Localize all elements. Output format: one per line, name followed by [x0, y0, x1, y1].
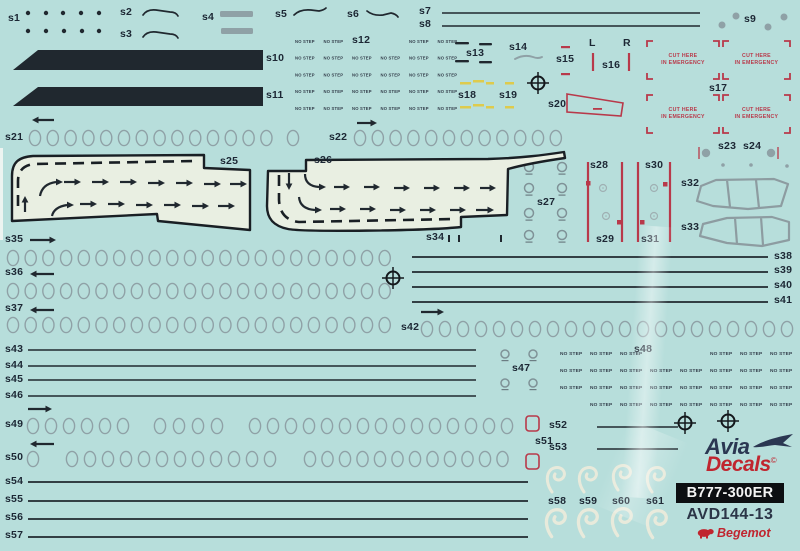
window-oval-outline [43, 317, 54, 332]
window-oval-outline [96, 250, 107, 265]
window-oval-outline [326, 317, 337, 332]
gray-dot-decal [781, 14, 788, 21]
window-oval-outline [78, 250, 89, 265]
no-step-text: NO STEP [650, 368, 673, 374]
yellow-dash-decal [505, 82, 514, 85]
window-oval-outline [308, 283, 319, 298]
no-step-text: NO STEP [740, 385, 763, 391]
window-oval-outline [781, 321, 792, 336]
window-oval-outline [102, 451, 113, 466]
window-oval-outline [238, 250, 249, 265]
window-oval-outline [372, 130, 383, 145]
window-oval-outline [393, 418, 404, 433]
window-oval-outline [291, 250, 302, 265]
no-step-text: NO STEP [620, 402, 643, 408]
window-oval-outline [25, 250, 36, 265]
no-step-text: NO STEP [770, 351, 793, 357]
window-oval-outline [379, 317, 390, 332]
window-oval-outline [322, 451, 333, 466]
window-oval-outline [96, 317, 107, 332]
filler-ring-decal [558, 231, 567, 240]
window-oval-outline [379, 283, 390, 298]
window-oval-outline [443, 130, 454, 145]
window-oval-outline [344, 250, 355, 265]
window-oval-outline [101, 130, 112, 145]
direction-arrow-head [438, 309, 445, 316]
window-oval-outline [550, 130, 561, 145]
cut-here-text: IN EMERGENCY [661, 114, 705, 120]
yellow-dash-decal [486, 106, 494, 109]
yellow-dash-decal [460, 82, 471, 85]
publisher-mark: Begemot [697, 527, 770, 540]
window-oval-outline [131, 317, 142, 332]
window-oval-outline [462, 451, 473, 466]
no-step-text: NO STEP [710, 351, 733, 357]
window-oval-outline [61, 317, 72, 332]
window-oval-outline [47, 130, 58, 145]
filler-ring-caption [559, 220, 566, 221]
window-oval-outline [167, 283, 178, 298]
direction-arrow-head [30, 271, 37, 278]
no-step-text: NO STEP [438, 39, 458, 44]
window-oval-outline [637, 321, 648, 336]
no-step-text: NO STEP [352, 56, 372, 61]
window-oval-outline [304, 451, 315, 466]
no-step-text: NO STEP [409, 56, 429, 61]
filler-ring-decal [525, 184, 534, 193]
catalog-number: AVD144-13 [676, 506, 784, 524]
swirl-decal [578, 510, 597, 537]
window-oval-outline [131, 250, 142, 265]
window-oval-outline [118, 130, 129, 145]
black-dot-decal [97, 29, 101, 33]
no-step-text: NO STEP [680, 402, 703, 408]
filler-ring-caption [502, 389, 509, 390]
faint-ring-dot [602, 187, 604, 189]
window-oval-outline [583, 321, 594, 336]
publisher-name: Begemot [717, 527, 770, 540]
filler-ring-caption [526, 220, 533, 221]
no-step-text: NO STEP [770, 402, 793, 408]
window-oval-outline [444, 451, 455, 466]
curve-mark-decal [515, 56, 542, 59]
cut-corner-bracket [723, 41, 729, 47]
decal-sheet: NO STEPNO STEPNO STEPNO STEPNO STEPNO ST… [0, 0, 800, 551]
gray-dot-decal [749, 163, 753, 167]
sensor-dot-decal [702, 149, 710, 157]
window-oval-outline [45, 418, 56, 433]
window-oval-outline [246, 451, 257, 466]
cockpit-window-outline [700, 217, 789, 246]
window-oval-outline [479, 130, 490, 145]
no-step-text: NO STEP [324, 56, 344, 61]
yellow-dash-decal [473, 104, 484, 107]
airplane-icon [752, 433, 794, 450]
window-oval-outline [172, 130, 183, 145]
window-oval-outline [192, 451, 203, 466]
window-oval-outline [321, 418, 332, 433]
panel-outline-decal [567, 94, 623, 116]
red-dash-decal [561, 46, 570, 48]
black-dot-decal [26, 29, 30, 33]
cut-corner-bracket [647, 41, 653, 47]
curve-mark-decal [143, 10, 178, 16]
no-step-text: NO STEP [650, 402, 673, 408]
window-oval-outline [273, 283, 284, 298]
window-oval-outline [326, 250, 337, 265]
window-oval-outline [497, 130, 508, 145]
no-step-text: NO STEP [710, 402, 733, 408]
window-oval-outline [427, 451, 438, 466]
window-oval-outline [273, 250, 284, 265]
faint-ring-dot [605, 215, 607, 217]
window-oval-outline [255, 250, 266, 265]
window-oval-outline [149, 317, 160, 332]
cut-here-text: CUT HERE [742, 53, 771, 59]
window-oval-outline [375, 418, 386, 433]
curve-mark-decal [367, 11, 398, 17]
window-oval-outline [291, 317, 302, 332]
window-oval-outline [709, 321, 720, 336]
window-oval-outline [61, 283, 72, 298]
tick-mark-decal [458, 235, 460, 242]
black-cheatline-stripe [13, 87, 263, 106]
black-dash-decal [479, 61, 492, 63]
black-dash-decal [479, 43, 492, 45]
copyright-mark: © [771, 456, 776, 465]
cut-here-text: IN EMERGENCY [735, 60, 779, 66]
cut-corner-bracket [723, 95, 729, 101]
window-oval-outline [43, 283, 54, 298]
black-dot-decal [80, 29, 84, 33]
filler-ring-caption [526, 242, 533, 243]
window-oval-outline [408, 130, 419, 145]
window-oval-outline [238, 317, 249, 332]
window-oval-outline [167, 317, 178, 332]
window-oval-outline [131, 283, 142, 298]
window-oval-outline [202, 250, 213, 265]
window-oval-outline [255, 317, 266, 332]
filler-ring-decal [558, 163, 567, 172]
filler-ring-caption [526, 195, 533, 196]
window-oval-outline [207, 130, 218, 145]
window-oval-outline [7, 317, 18, 332]
window-oval-outline [501, 418, 512, 433]
window-oval-outline [7, 250, 18, 265]
window-oval-outline [390, 130, 401, 145]
no-step-text: NO STEP [295, 39, 315, 44]
window-oval-outline [184, 283, 195, 298]
no-step-text: NO STEP [438, 72, 458, 77]
no-step-text: NO STEP [710, 385, 733, 391]
filler-ring-caption [559, 174, 566, 175]
window-oval-outline [465, 418, 476, 433]
window-oval-outline [190, 130, 201, 145]
black-dot-decal [79, 11, 83, 15]
no-step-text: NO STEP [680, 368, 703, 374]
window-oval-outline [357, 451, 368, 466]
filler-ring-caption [502, 360, 509, 361]
window-oval-outline [99, 418, 110, 433]
window-oval-outline [532, 130, 543, 145]
faint-ring-dot [653, 215, 655, 217]
window-oval-outline [339, 451, 350, 466]
no-step-text: NO STEP [409, 39, 429, 44]
no-step-text: NO STEP [590, 385, 613, 391]
cut-corner-bracket [723, 73, 729, 79]
yellow-dash-decal [486, 82, 494, 85]
model-badge: B777-300ER [676, 483, 784, 503]
filler-ring-decal [525, 209, 534, 218]
gray-bar-decal [220, 11, 253, 17]
window-oval-outline [61, 250, 72, 265]
tick-mark-decal [448, 235, 450, 242]
red-square-mark [663, 182, 668, 187]
window-oval-outline [326, 283, 337, 298]
no-step-text: NO STEP [381, 72, 401, 77]
red-square-mark [640, 220, 645, 225]
cut-corner-bracket [647, 127, 653, 133]
window-oval-outline [27, 418, 38, 433]
window-oval-outline [273, 317, 284, 332]
tick-mark-decal [500, 235, 502, 242]
no-step-text: NO STEP [381, 56, 401, 61]
window-oval-outline [357, 418, 368, 433]
cut-corner-bracket [713, 127, 719, 133]
gray-dot-decal [785, 164, 789, 168]
door-outline-decal [526, 416, 539, 431]
no-step-text: NO STEP [560, 351, 583, 357]
no-step-text: NO STEP [438, 106, 458, 111]
window-oval-outline [114, 283, 125, 298]
black-cheatline-stripe [13, 50, 263, 70]
door-outline-decal [526, 454, 539, 469]
window-oval-outline [267, 418, 278, 433]
window-oval-outline [475, 321, 486, 336]
window-oval-outline [7, 283, 18, 298]
gray-bar-decal [221, 28, 253, 34]
window-oval-outline [174, 451, 185, 466]
decal-artwork: NO STEPNO STEPNO STEPNO STEPNO STEPNO ST… [0, 0, 800, 551]
gray-dot-decal [719, 22, 726, 29]
no-step-text: NO STEP [438, 89, 458, 94]
window-oval-outline [673, 321, 684, 336]
window-oval-outline [156, 451, 167, 466]
red-dash-decal [593, 108, 602, 110]
no-step-text: NO STEP [620, 368, 643, 374]
swirl-decal [546, 510, 565, 537]
window-oval-outline [261, 130, 272, 145]
window-oval-outline [421, 321, 432, 336]
window-oval-outline [529, 321, 540, 336]
window-oval-outline [763, 321, 774, 336]
swirl-decal [579, 468, 596, 492]
window-oval-outline [81, 418, 92, 433]
window-oval-outline [138, 451, 149, 466]
no-step-text: NO STEP [590, 402, 613, 408]
cut-corner-bracket [784, 73, 790, 79]
no-step-text: NO STEP [740, 402, 763, 408]
window-oval-outline [211, 418, 222, 433]
cut-corner-bracket [784, 41, 790, 47]
window-oval-outline [426, 130, 437, 145]
gray-dot-decal [765, 24, 772, 31]
no-step-text: NO STEP [324, 106, 344, 111]
window-oval-outline [565, 321, 576, 336]
window-oval-outline [202, 283, 213, 298]
no-step-text: NO STEP [409, 106, 429, 111]
window-oval-outline [83, 130, 94, 145]
window-oval-outline [114, 317, 125, 332]
red-dash-decal [561, 73, 570, 75]
cut-corner-bracket [713, 95, 719, 101]
no-step-text: NO STEP [560, 368, 583, 374]
no-step-text: NO STEP [324, 39, 344, 44]
sheet-edge [0, 148, 3, 240]
window-oval-outline [515, 130, 526, 145]
filler-ring-decal [529, 379, 537, 387]
window-oval-outline [354, 130, 365, 145]
brand-decals-text: Decals [706, 453, 771, 476]
black-dot-decal [61, 11, 65, 15]
swirl-decal [647, 511, 666, 538]
filler-ring-decal [529, 350, 537, 358]
no-step-text: NO STEP [409, 89, 429, 94]
no-step-text: NO STEP [560, 385, 583, 391]
filler-ring-decal [501, 379, 509, 387]
wing-walkway-decal [267, 152, 565, 231]
window-oval-outline [173, 418, 184, 433]
window-oval-outline [210, 451, 221, 466]
window-oval-outline [409, 451, 420, 466]
direction-arrow-head [30, 441, 37, 448]
window-oval-outline [308, 250, 319, 265]
no-step-text: NO STEP [740, 368, 763, 374]
no-step-text: NO STEP [352, 106, 372, 111]
wing-walkway-decal [12, 155, 250, 230]
no-step-text: NO STEP [680, 385, 703, 391]
no-step-text: NO STEP [295, 56, 315, 61]
cockpit-window-outline [697, 179, 788, 209]
window-oval-outline [149, 283, 160, 298]
window-oval-outline [429, 418, 440, 433]
window-oval-outline [439, 321, 450, 336]
window-oval-outline [84, 451, 95, 466]
window-oval-outline [25, 317, 36, 332]
direction-arrow-head [371, 120, 378, 127]
yellow-dash-decal [505, 106, 514, 109]
window-oval-outline [184, 250, 195, 265]
window-oval-outline [411, 418, 422, 433]
window-oval-outline [78, 317, 89, 332]
window-oval-outline [479, 451, 490, 466]
direction-arrow-head [30, 307, 37, 314]
window-oval-outline [120, 451, 131, 466]
window-oval-outline [184, 317, 195, 332]
window-oval-outline [117, 418, 128, 433]
window-oval-outline [339, 418, 350, 433]
cut-corner-bracket [784, 95, 790, 101]
no-step-text: NO STEP [438, 56, 458, 61]
direction-arrow-head [50, 237, 57, 244]
yellow-dash-decal [460, 106, 471, 109]
filler-ring-decal [558, 184, 567, 193]
red-square-mark [617, 220, 622, 225]
black-dot-decal [44, 29, 48, 33]
cut-here-text: IN EMERGENCY [661, 60, 705, 66]
window-oval-outline [66, 451, 77, 466]
window-oval-outline [361, 317, 372, 332]
window-oval-outline [655, 321, 666, 336]
window-oval-outline [29, 130, 40, 145]
window-oval-outline [114, 250, 125, 265]
window-oval-outline [344, 283, 355, 298]
no-step-text: NO STEP [352, 89, 372, 94]
no-step-text: NO STEP [295, 106, 315, 111]
window-oval-outline [497, 451, 508, 466]
no-step-text: NO STEP [740, 351, 763, 357]
no-step-text: NO STEP [770, 385, 793, 391]
window-oval-outline [287, 130, 298, 145]
no-step-text: NO STEP [650, 385, 673, 391]
black-dash-decal [455, 60, 469, 62]
window-oval-outline [65, 130, 76, 145]
cut-here-text: CUT HERE [669, 53, 698, 59]
window-oval-outline [154, 130, 165, 145]
window-oval-outline [264, 451, 275, 466]
window-oval-outline [361, 283, 372, 298]
window-oval-outline [308, 317, 319, 332]
filler-ring-caption [530, 389, 537, 390]
filler-ring-decal [501, 350, 509, 358]
filler-ring-caption [559, 242, 566, 243]
window-oval-outline [78, 283, 89, 298]
cut-corner-bracket [713, 73, 719, 79]
window-oval-outline [511, 321, 522, 336]
no-step-text: NO STEP [295, 89, 315, 94]
window-oval-outline [63, 418, 74, 433]
black-dash-decal [455, 42, 469, 44]
window-oval-outline [238, 283, 249, 298]
filler-ring-decal [525, 231, 534, 240]
yellow-dash-decal [473, 80, 484, 83]
window-oval-outline [136, 130, 147, 145]
begemot-hippo-icon [697, 527, 714, 539]
no-step-text: NO STEP [381, 106, 401, 111]
window-oval-outline [192, 418, 203, 433]
window-oval-outline [154, 418, 165, 433]
swirl-decal [613, 466, 630, 490]
faint-ring-dot [653, 187, 655, 189]
window-oval-outline [361, 250, 372, 265]
filler-ring-caption [526, 174, 533, 175]
filler-ring-decal [558, 209, 567, 218]
brand-decals-wordmark: Decals© [706, 454, 776, 475]
no-step-text: NO STEP [324, 89, 344, 94]
no-step-text: NO STEP [324, 72, 344, 77]
no-step-text: NO STEP [409, 72, 429, 77]
window-oval-outline [457, 321, 468, 336]
window-oval-outline [379, 250, 390, 265]
window-oval-outline [461, 130, 472, 145]
window-oval-outline [291, 283, 302, 298]
no-step-text: NO STEP [710, 368, 733, 374]
window-oval-outline [344, 317, 355, 332]
window-oval-outline [745, 321, 756, 336]
window-oval-outline [493, 321, 504, 336]
window-oval-outline [619, 321, 630, 336]
window-oval-outline [43, 250, 54, 265]
